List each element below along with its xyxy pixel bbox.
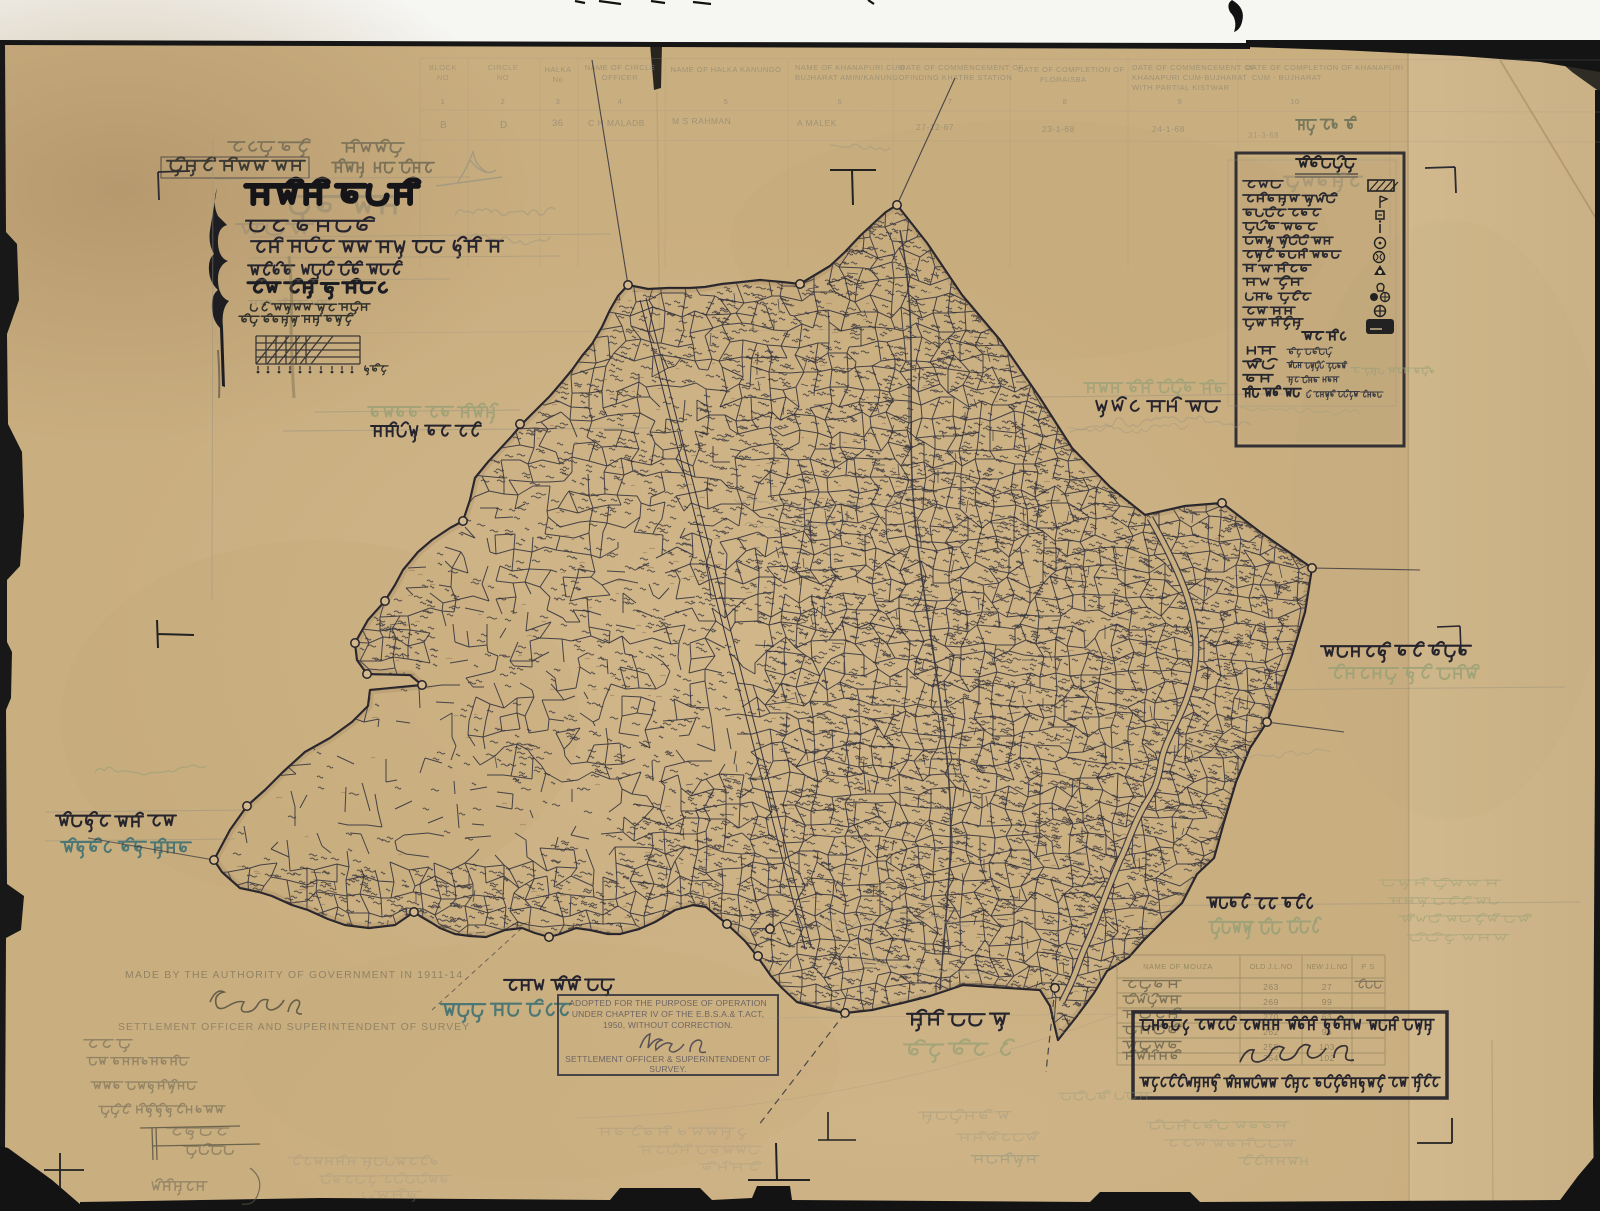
svg-text:262: 262 (1263, 1027, 1279, 1037)
svg-text:7: 7 (948, 97, 953, 106)
svg-text:NO: NO (437, 73, 449, 82)
svg-text:1: 1 (441, 97, 446, 106)
svg-text:3: 3 (556, 97, 561, 106)
svg-text:B: B (440, 120, 447, 131)
svg-text:DATE OF COMMENCEMENT OF: DATE OF COMMENCEMENT OF (1132, 63, 1256, 72)
svg-text:2: 2 (501, 97, 506, 106)
svg-text:NAME OF MOUZA: NAME OF MOUZA (1143, 962, 1213, 971)
svg-text:A MALEK: A MALEK (797, 118, 837, 128)
svg-text:NAME OF CIRCLE: NAME OF CIRCLE (585, 63, 656, 72)
svg-text:27: 27 (1322, 982, 1332, 992)
svg-text:27-12-67: 27-12-67 (916, 122, 954, 132)
svg-text:CIRCLE: CIRCLE (488, 63, 519, 72)
svg-text:BLOCK: BLOCK (429, 63, 457, 72)
svg-text:ADOPTED FOR THE PURPOSE OF OPE: ADOPTED FOR THE PURPOSE OF OPERATION (569, 998, 767, 1008)
svg-text:M S RAHMAN: M S RAHMAN (672, 116, 731, 126)
svg-text:No: No (553, 75, 564, 84)
svg-text:C H MALADB: C H MALADB (588, 118, 645, 128)
svg-text:10: 10 (1290, 97, 1299, 106)
svg-text:NAME OF HALKA KANUNGO: NAME OF HALKA KANUNGO (671, 65, 782, 74)
svg-text:OFFICER: OFFICER (602, 73, 638, 82)
svg-text:SURVEY.: SURVEY. (649, 1064, 686, 1074)
svg-text:5: 5 (724, 97, 729, 106)
svg-text:NEW J.L.NO: NEW J.L.NO (1306, 964, 1348, 971)
svg-text:D: D (500, 120, 508, 131)
svg-text:6: 6 (838, 97, 843, 106)
svg-text:MADE BY THE AUTHORITY OF GOVER: MADE BY THE AUTHORITY OF GOVERNMENT IN 1… (125, 969, 463, 981)
svg-text:NAME OF KHANAPURI CUM: NAME OF KHANAPURI CUM (795, 63, 905, 72)
svg-text:BUJHARAT AMIN/KANUNGO: BUJHARAT AMIN/KANUNGO (795, 73, 905, 82)
svg-text:1950, WITHOUT CORRECTION.: 1950, WITHOUT CORRECTION. (603, 1020, 733, 1030)
svg-text:SETTLEMENT OFFICER AND SUPERIN: SETTLEMENT OFFICER AND SUPERINTENDENT OF… (118, 1021, 470, 1033)
svg-text:KHANAPURI CUM-BUJHARAT: KHANAPURI CUM-BUJHARAT (1132, 73, 1247, 82)
svg-text:OLD J.L.NO: OLD J.L.NO (1250, 962, 1293, 971)
svg-text:99: 99 (1322, 997, 1332, 1007)
svg-text:36: 36 (552, 118, 564, 129)
svg-text:8: 8 (1063, 97, 1068, 106)
svg-text:P S: P S (1361, 962, 1374, 971)
svg-text:FLORAISBA: FLORAISBA (1040, 75, 1087, 84)
svg-text:DATE OF COMPLETION OF KHANAPUR: DATE OF COMPLETION OF KHANAPURI (1246, 63, 1403, 72)
svg-text:24-1-68: 24-1-68 (1152, 124, 1185, 134)
svg-text:UNDER CHAPTER IV OF THE E.B.S.: UNDER CHAPTER IV OF THE E.B.S.A.& T.ACT, (572, 1009, 764, 1019)
svg-text:4: 4 (618, 97, 623, 106)
svg-text:CUM - BUJHARAT: CUM - BUJHARAT (1252, 73, 1322, 82)
svg-text:31-3-68: 31-3-68 (1248, 131, 1279, 140)
svg-text:NO: NO (497, 73, 509, 82)
svg-text:DATE OF COMMENCEMENT OF: DATE OF COMMENCEMENT OF (900, 63, 1024, 72)
svg-text:269: 269 (1263, 997, 1279, 1007)
svg-text:FINDING KHATRE STATION: FINDING KHATRE STATION (905, 73, 1012, 82)
svg-text:263: 263 (1263, 982, 1279, 992)
svg-text:103: 103 (1319, 1042, 1335, 1052)
svg-text:HALKA: HALKA (544, 65, 571, 74)
svg-text:WITH PARTIAL KISTWAR: WITH PARTIAL KISTWAR (1132, 83, 1230, 92)
svg-text:9: 9 (1178, 97, 1183, 106)
svg-text:23-1-68: 23-1-68 (1042, 124, 1075, 134)
svg-text:DATE OF COMPLETION OF: DATE OF COMPLETION OF (1018, 65, 1125, 74)
svg-text:SETTLEMENT OFFICER & SUPERINTE: SETTLEMENT OFFICER & SUPERINTENDENT OF (565, 1054, 771, 1064)
